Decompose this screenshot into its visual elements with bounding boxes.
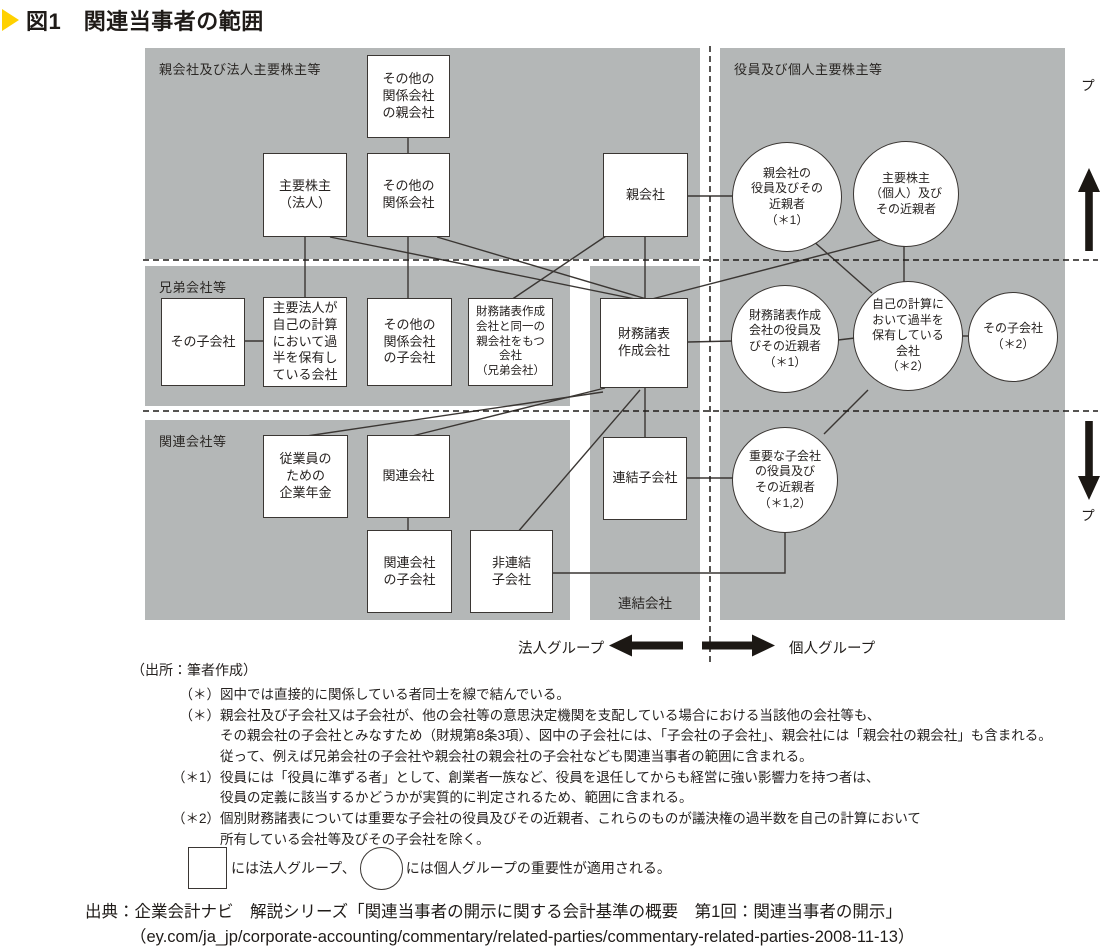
title-triangle-icon [2,9,19,31]
legend-circle-text: には個人グループの重要性が適用される。 [406,858,671,878]
corporate-direction-arrow [609,635,683,657]
footnote-text: 役員には「役員に準ずる者」として、創業者一族など、役員を退任してからも経営に強い… [220,766,879,786]
node-other-related-company: その他の 関係会社 [367,153,450,237]
node-label: その他の 関係会社 の親会社 [382,71,434,122]
node-major-shareholder-individual: 主要株主 （個人）及び その近親者 [853,141,959,247]
region-label-parent-corporate: 親会社及び法人主要株主等 [159,59,321,78]
node-label: 主要法人が 自己の計算 において過 半を保有し ている会社 [272,300,337,384]
node-employee-pension: 従業員の ための 企業年金 [263,435,348,518]
node-label: 主要株主 （個人）及び その近親者 [870,171,942,218]
node-reporting-co-officers: 財務諸表作成 会社の役員及 びその近親者 （＊1） [731,285,839,393]
node-label: その子会社 （＊2） [983,321,1043,352]
node-major-shareholder-corporate: 主要株主 （法人） [263,153,347,237]
node-label: 財務諸表作成 会社と同一の 親会社をもつ 会社 （兄弟会社） [476,305,545,380]
attribution-note: （出所：筆者作成） [131,660,257,680]
legend-square-icon [188,847,227,889]
node-reporting-company: 財務諸表 作成会社 [600,298,688,388]
node-its-subsidiary: その子会社 [161,298,245,386]
node-label: 関連会社 の子会社 [383,555,435,589]
node-affiliated-company: 関連会社 [367,435,450,518]
node-label: 財務諸表 作成会社 [618,326,670,360]
footnote-row: （＊2）個別財務諸表については重要な子会社の役員及びその近親者、これらのものが議… [162,807,1097,828]
node-its-subsidiary-2: その子会社 （＊2） [968,292,1058,382]
node-label: 主要株主 （法人） [279,178,331,212]
footnote-row: 役員の定義に該当するかどうかが実質的に判定されるため、範囲に含まれる。 [162,786,1097,807]
node-majority-holding-company: 自己の計算に おいて過半を 保有している 会社 （＊2） [853,281,963,391]
node-sibling-company: 財務諸表作成 会社と同一の 親会社をもつ 会社 （兄弟会社） [468,298,553,386]
footnote-text: 図中では直接的に関係している者同士を線で結んでいる。 [220,683,570,703]
source-line-1: 出典：企業会計ナビ 解説シリーズ「関連当事者の開示に関する会計基準の概要 第1回… [85,900,914,925]
node-label: 親会社 [626,187,665,204]
node-label: その他の 関係会社 [382,178,434,212]
footnote-marker: （＊2） [162,807,220,827]
node-label: 重要な子会社 の役員及び その近親者 （＊1,2） [749,449,821,511]
footnote-row: （＊1）役員には「役員に準ずる者」として、創業者一族など、役員を退任してからも経… [162,766,1097,787]
footnote-text: 親会社及び子会社又は子会社が、他の会社等の意思決定機関を支配している場合における… [220,704,880,724]
node-consolidated-subsidiary: 連結子会社 [603,437,687,520]
node-label: その子会社 [170,334,235,351]
node-label: 親会社の 役員及びその 近親者 （＊1） [751,166,823,228]
lower-group-arrow [1078,421,1100,500]
node-label: 連結子会社 [612,470,677,487]
figure-title-row: 図1 関連当事者の範囲 [2,4,264,36]
source-line-2: （ey.com/ja_jp/corporate-accounting/comme… [130,925,914,950]
node-label: 財務諸表作成 会社の役員及 びその近親者 （＊1） [749,308,821,370]
footnote-marker: （＊1） [162,766,220,786]
footnote-row: その親会社の子会社とみなすため（財規第8条3項）、図中の子会社には、「子会社の子… [162,724,1097,745]
footnotes-block: （＊）図中では直接的に関係している者同士を線で結んでいる。 （＊）親会社及び子会… [162,683,1097,849]
individual-direction-arrow [702,635,775,657]
source-citation: 出典：企業会計ナビ 解説シリーズ「関連当事者の開示に関する会計基準の概要 第1回… [85,900,914,950]
legend-square-text: には法人グループ、 [231,858,356,878]
node-parent-company: 親会社 [603,153,688,237]
region-label-consolidated: 連結会社 [590,592,700,612]
region-label-affiliate: 関連会社等 [159,431,227,450]
footnote-marker: （＊） [162,683,220,703]
footnote-text: 個別財務諸表については重要な子会社の役員及びその近親者、これらのものが議決権の過… [220,807,921,827]
corporate-group-label: 法人グループ [518,637,604,658]
node-other-related-parent: その他の 関係会社 の親会社 [367,55,450,138]
upper-group-arrow [1078,168,1100,251]
node-majority-held-by-major-corp: 主要法人が 自己の計算 において過 半を保有し ている会社 [263,297,347,387]
region-label-sibling: 兄弟会社等 [159,277,227,296]
region-label-individual: 役員及び個人主要株主等 [734,59,883,78]
footnote-marker: （＊） [162,704,220,724]
node-label: その他の 関係会社 の子会社 [383,317,435,368]
footnote-text: その親会社の子会社とみなすため（財規第8条3項）、図中の子会社には、「子会社の子… [220,724,1052,744]
footnote-row: （＊）図中では直接的に関係している者同士を線で結んでいる。 [162,683,1097,704]
node-label: 非連結 子会社 [492,555,531,589]
node-parent-officers: 親会社の 役員及びその 近親者 （＊1） [732,142,842,252]
node-nonconsolidated-subsidiary: 非連結 子会社 [470,530,553,613]
shape-legend: には法人グループ、 には個人グループの重要性が適用される。 [188,845,671,891]
footnote-text: 役員の定義に該当するかどうかが実質的に判定されるため、範囲に含まれる。 [220,786,693,806]
figure-related-parties-scope: 図1 関連当事者の範囲 親会社及び法人主要株主等 役員及び個人主要株主等 兄弟会… [0,0,1100,952]
legend-circle-icon [360,847,403,890]
individual-group-label: 個人グループ [789,637,875,658]
figure-title: 図1 関連当事者の範囲 [26,4,264,36]
node-label: 自己の計算に おいて過半を 保有している 会社 （＊2） [872,297,944,375]
footnote-row: 従って、例えば兄弟会社の子会社や親会社の親会社の子会社なども関連当事者の範囲に含… [162,745,1097,766]
node-important-subsidiary-officers: 重要な子会社 の役員及び その近親者 （＊1,2） [732,427,838,533]
node-label: 従業員の ための 企業年金 [279,451,331,502]
lower-group-label: 下位グループ [1078,508,1100,603]
footnote-text: 従って、例えば兄弟会社の子会社や親会社の親会社の子会社なども関連当事者の範囲に含… [220,745,813,765]
node-label: 関連会社 [382,468,434,485]
node-other-related-subsidiary: その他の 関係会社 の子会社 [367,298,452,386]
node-affiliate-subsidiary: 関連会社 の子会社 [367,530,452,613]
footnote-row: （＊）親会社及び子会社又は子会社が、他の会社等の意思決定機関を支配している場合に… [162,704,1097,725]
upper-group-label: 上位グループ [1078,78,1100,173]
